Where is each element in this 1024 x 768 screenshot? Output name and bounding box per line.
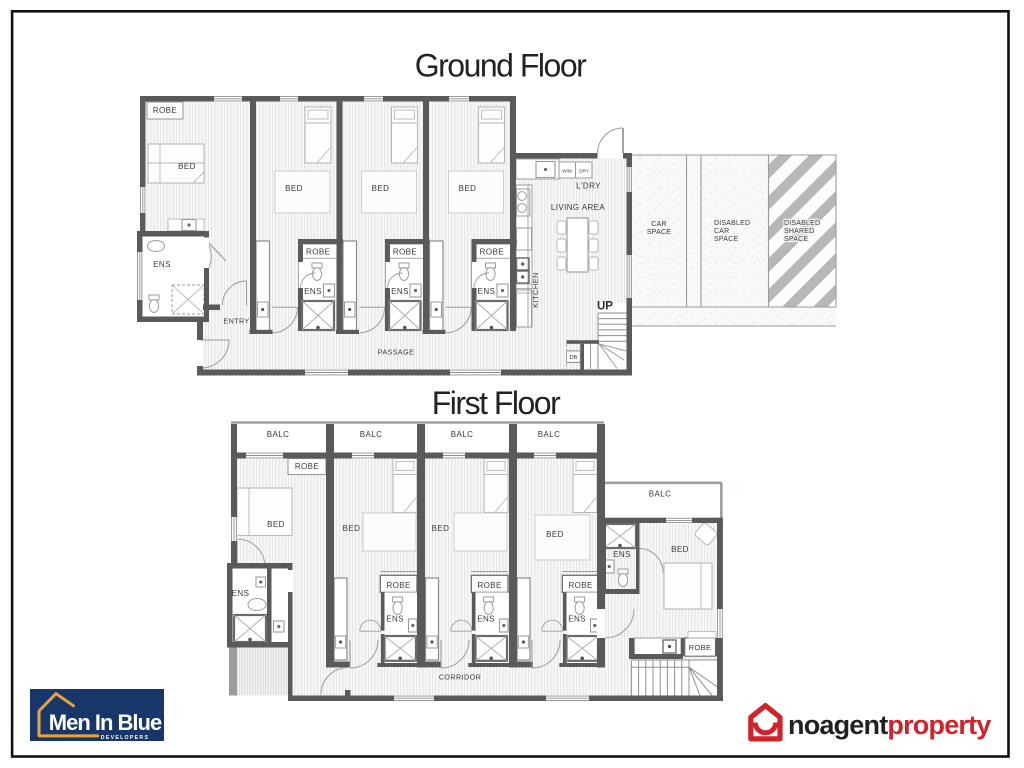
svg-text:BED: BED [285,184,303,193]
svg-text:BED: BED [343,524,361,533]
svg-text:BED: BED [459,184,477,193]
svg-text:BALC: BALC [649,490,672,499]
svg-text:DB: DB [570,355,578,361]
svg-text:SPACE: SPACE [784,236,808,243]
svg-text:DEVELOPERS: DEVELOPERS [101,735,149,741]
svg-text:BED: BED [671,545,689,554]
svg-text:ROBE: ROBE [568,581,592,590]
svg-text:SHARED: SHARED [784,228,814,235]
svg-text:CORRIDOR: CORRIDOR [439,673,481,682]
svg-text:UP: UP [597,301,613,313]
svg-text:ENS: ENS [386,615,404,624]
svg-text:ENS: ENS [568,615,586,624]
svg-text:ENS: ENS [477,615,495,624]
svg-text:BED: BED [267,520,285,529]
svg-text:SPACE: SPACE [714,236,738,243]
svg-text:First Floor: First Floor [432,385,561,421]
svg-text:ENS: ENS [153,260,171,269]
svg-text:ROBE: ROBE [153,106,177,115]
svg-text:KITCHEN: KITCHEN [531,272,540,308]
svg-text:ENS: ENS [232,589,250,598]
svg-text:noagentproperty: noagentproperty [788,710,991,740]
svg-text:ROBE: ROBE [477,581,501,590]
svg-text:Ground Floor: Ground Floor [415,48,587,84]
svg-text:BALC: BALC [451,430,474,439]
svg-text:DISABLED: DISABLED [714,220,750,227]
svg-text:SPACE: SPACE [647,229,671,236]
svg-text:ENS: ENS [478,287,496,296]
svg-text:BED: BED [546,530,564,539]
svg-text:ROBE: ROBE [295,462,319,471]
svg-text:DRY: DRY [579,169,589,174]
svg-text:ROBE: ROBE [393,248,417,257]
svg-text:L'DRY: L'DRY [576,182,601,191]
svg-text:ENS: ENS [613,550,631,559]
svg-text:BED: BED [372,184,390,193]
svg-text:BALC: BALC [538,430,561,439]
svg-text:BED: BED [178,162,196,171]
svg-text:W/M: W/M [562,169,572,174]
svg-text:ROBE: ROBE [689,643,712,652]
svg-text:PASSAGE: PASSAGE [378,348,415,357]
svg-text:BED: BED [432,524,450,533]
svg-text:BALC: BALC [360,430,383,439]
svg-text:ENS: ENS [304,287,322,296]
svg-text:CAR: CAR [714,228,729,235]
svg-text:ROBE: ROBE [306,248,330,257]
svg-text:Men In Blue: Men In Blue [49,710,162,735]
svg-text:ENTRY: ENTRY [223,317,249,326]
svg-text:LIVING AREA: LIVING AREA [551,203,605,212]
svg-text:ENS: ENS [391,287,409,296]
svg-text:CAR: CAR [651,221,666,228]
svg-text:BALC: BALC [267,430,290,439]
svg-text:DISABLED: DISABLED [784,220,820,227]
svg-text:ROBE: ROBE [480,248,504,257]
svg-text:ROBE: ROBE [386,581,410,590]
